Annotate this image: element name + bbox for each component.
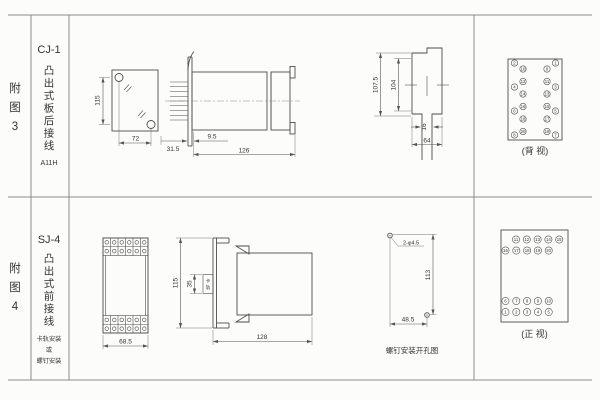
- terminal-number: 18: [525, 248, 530, 253]
- terminal-number: 12: [521, 79, 526, 84]
- dim-hole-height: 113: [425, 269, 432, 280]
- terminal-number: 19: [545, 129, 550, 134]
- terminal-number: 9: [537, 299, 540, 304]
- dim-rail-width: 35: [187, 280, 194, 288]
- screw-terminal: [142, 318, 146, 322]
- terminal-number: 16: [521, 104, 526, 109]
- terminal-number: 5: [554, 109, 557, 114]
- terminal-number: 16: [503, 248, 508, 253]
- model-label-sj4: SJ-4: [38, 234, 61, 246]
- screw-terminal: [127, 249, 131, 253]
- terminal-number: 11: [514, 237, 519, 242]
- relay-body: [237, 253, 312, 315]
- mounting-hole: [115, 74, 123, 82]
- relay-body: [192, 72, 267, 130]
- terminal-number: 10: [546, 299, 551, 304]
- terminal-number: 13: [545, 92, 550, 97]
- screw-terminal: [112, 249, 116, 253]
- screw-terminal: [142, 327, 146, 331]
- screw-terminal: [127, 327, 131, 331]
- row2-drill-view: 2-φ4.5 113 48.5 螺钉安装开孔图: [386, 233, 439, 355]
- wire-hook: [188, 52, 194, 71]
- screw-terminal: [105, 327, 109, 331]
- terminal-number: 9: [546, 67, 549, 72]
- row2-front-view: 68.5: [103, 238, 148, 349]
- screw-terminal: [135, 318, 139, 322]
- terminal-number: 12: [524, 237, 529, 242]
- dim-pin-depth: 31.5: [167, 146, 180, 153]
- terminal-number: 8: [513, 133, 516, 138]
- terminal-number: 15: [557, 237, 562, 242]
- terminal-number: 5: [548, 310, 551, 315]
- row1-cutout-view: 107.5 104 16 64: [373, 48, 450, 160]
- model-label-cj1: CJ-1: [37, 44, 60, 56]
- code-label: A11H: [41, 160, 58, 167]
- din-rail-section: [203, 275, 213, 294]
- terminal-number: 1: [554, 61, 557, 66]
- dim-panel-width: 72: [132, 136, 140, 143]
- dim-front-depth: 9.5: [207, 134, 216, 141]
- screw-terminal: [112, 241, 116, 245]
- dim-cutout-outer: 107.5: [373, 76, 380, 93]
- back-view-caption: (背 视): [522, 145, 549, 156]
- screw-terminal: [105, 241, 109, 245]
- rail-label: 卡轨: [206, 278, 211, 292]
- drill-view-caption: 螺钉安装开孔图: [386, 345, 439, 355]
- screw-terminal: [120, 327, 124, 331]
- mounting-hole: [147, 121, 155, 129]
- type-label-row2: 凸出式前接线: [44, 253, 55, 328]
- screw-terminal: [120, 318, 124, 322]
- front-view-caption: (正 视): [521, 328, 548, 339]
- terminal-number: 7: [554, 133, 557, 138]
- dim-front-width: 68.5: [119, 339, 132, 346]
- terminal-number: 13: [535, 237, 540, 242]
- row1-panel-view: 115 72: [95, 70, 159, 146]
- screw-terminal: [112, 327, 116, 331]
- terminal-number: 14: [546, 237, 551, 242]
- screw-terminal: [142, 249, 146, 253]
- drawing-sheet: 附图3 CJ-1 凸出式板后接线 A11H 115 72: [0, 0, 600, 400]
- screw-terminal: [127, 318, 131, 322]
- mount-line-2: 或: [46, 346, 52, 354]
- dim-cutout-width: 64: [423, 138, 431, 145]
- dim-slot: 16: [421, 123, 428, 131]
- dim-cutout-inner: 104: [391, 79, 398, 90]
- screw-terminal: [105, 249, 109, 253]
- terminal-number: 2: [515, 310, 518, 315]
- terminal-strips: [103, 238, 148, 333]
- terminal-number: 15: [545, 104, 550, 109]
- fig-label-3: 附图3: [9, 81, 21, 133]
- terminal-number: 20: [521, 129, 526, 134]
- front-terminals: 1112131415161718192067891012345: [502, 236, 563, 316]
- dim-panel-height: 115: [95, 95, 102, 106]
- mount-line-3: 螺钉安装: [37, 357, 62, 365]
- terminal-number: 17: [545, 117, 550, 122]
- dim-side-depth: 128: [257, 334, 268, 341]
- terminal-number: 1: [504, 310, 507, 315]
- screw-terminal: [127, 241, 131, 245]
- dim-hole-width: 48.5: [402, 317, 415, 324]
- terminal-number: 11: [545, 79, 550, 84]
- figure-svg: 附图3 CJ-1 凸出式板后接线 A11H 115 72: [0, 0, 600, 400]
- screw-terminal: [120, 241, 124, 245]
- terminal-number: 18: [521, 117, 526, 122]
- terminal-number: 8: [526, 299, 529, 304]
- screw-terminal: [135, 327, 139, 331]
- hatch-marks: [124, 85, 146, 119]
- type-label-row1: 凸出式板后接线: [44, 65, 55, 152]
- dim-total-depth: 126: [239, 148, 250, 155]
- terminal-number: 19: [536, 248, 541, 253]
- screw-terminal: [112, 318, 116, 322]
- terminal-number: 6: [504, 299, 507, 304]
- hole-spec-label: 2-φ4.5: [403, 241, 419, 247]
- screw-terminal: [120, 249, 124, 253]
- terminal-number: 17: [514, 248, 519, 253]
- terminal-number: 2: [513, 61, 516, 66]
- terminal-number: 10: [521, 67, 526, 72]
- dim-side-height: 115: [173, 277, 180, 288]
- fig-label-4: 附图4: [9, 261, 21, 313]
- row1-sidebar: 附图3 CJ-1 凸出式板后接线 A11H: [9, 44, 60, 167]
- screw-terminal: [105, 318, 109, 322]
- row1-back-view: 2468101214161820911131517191357 (背 视): [508, 59, 562, 156]
- row1-side-view: 9.5 31.5 126: [161, 52, 300, 158]
- screw-terminal: [135, 249, 139, 253]
- terminal-number: 3: [554, 85, 557, 90]
- terminal-number: 14: [521, 92, 526, 97]
- mount-line-1: 卡轨安装: [37, 335, 62, 343]
- row2-sidebar: 附图4 SJ-4 凸出式前接线 卡轨安装 或 螺钉安装: [9, 234, 61, 365]
- terminal-number: 7: [515, 299, 518, 304]
- screw-terminal: [135, 241, 139, 245]
- terminal-number: 4: [537, 310, 540, 315]
- back-terminals: 2468101214161820911131517191357: [511, 60, 558, 138]
- table-grid: [8, 15, 592, 380]
- row2-front-terminal-view: 1112131415161718192067891012345 (正 视): [501, 230, 568, 339]
- row2-side-view: 卡轨 115 35 128: [173, 238, 313, 345]
- screw-terminal: [142, 241, 146, 245]
- terminal-number: 20: [546, 248, 551, 253]
- terminal-number: 6: [513, 109, 516, 114]
- terminal-number: 4: [513, 85, 516, 90]
- terminal-number: 3: [526, 310, 529, 315]
